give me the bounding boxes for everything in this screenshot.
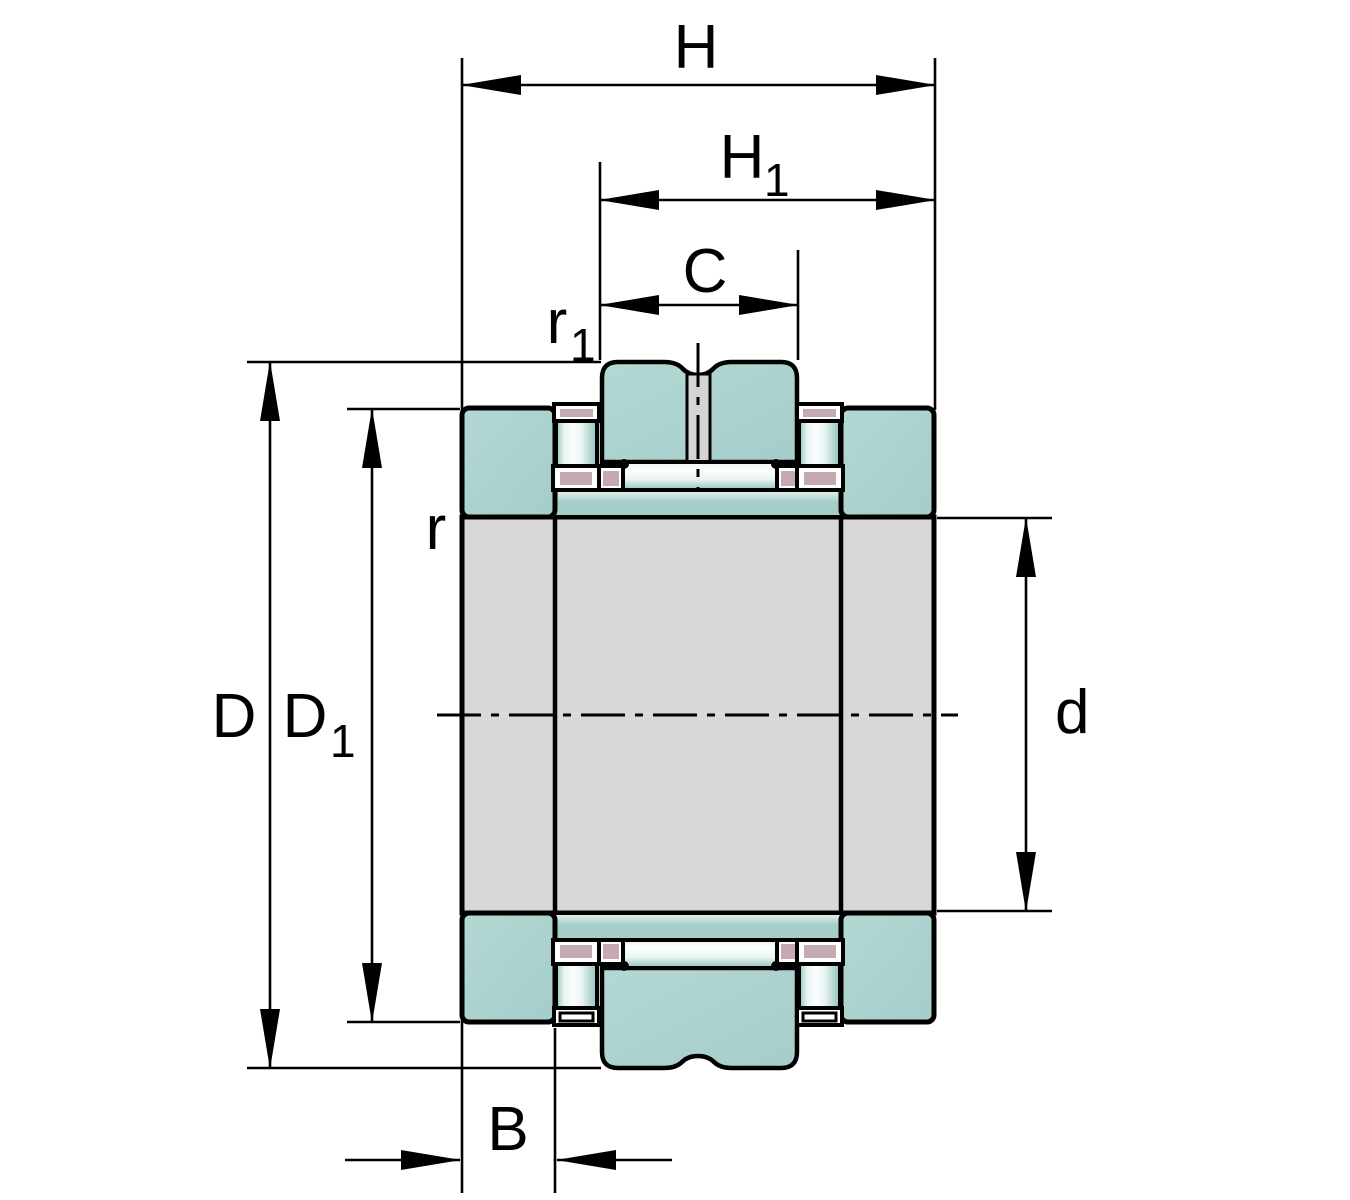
diagram-stage: H H 1 C r 1 r D D 1 d: [0, 0, 1350, 1200]
cage-segment-insert: [560, 472, 592, 485]
dimension-B: B: [345, 1095, 672, 1164]
radial-roller-bottom-left: [556, 962, 597, 1008]
radial-roller-top-left: [556, 421, 597, 467]
cage-bar-insert: [803, 409, 836, 417]
housing-block-bottom-right: [841, 913, 934, 1022]
bottom-sleeve-plug: [602, 968, 797, 1068]
housing-block-top-left: [462, 408, 555, 517]
h-dimension-label: H: [674, 13, 719, 82]
bearing-cross-section-diagram: H H 1 C r 1 r D D 1 d: [0, 0, 1350, 1200]
d-bore-dimension-label: d: [1055, 678, 1089, 747]
top-thrust-washer: [553, 490, 843, 517]
d1-dimension-subscript: 1: [330, 715, 356, 767]
h1-dimension-subscript: 1: [764, 154, 790, 206]
cage-segment-insert: [804, 945, 836, 958]
cage-bar-insert: [560, 1013, 593, 1021]
h1-dimension-label: H: [720, 123, 765, 192]
cage-segment-insert: [603, 944, 619, 959]
cage-bar-insert: [803, 1013, 836, 1021]
cage-segment-insert: [603, 471, 619, 486]
housing-block-top-right: [841, 408, 934, 517]
c-dimension-label: C: [683, 237, 728, 306]
cage-segment-insert: [804, 472, 836, 485]
cage-segment-insert: [781, 944, 797, 959]
dimension-H: H: [462, 13, 935, 85]
radial-roller-bottom-right: [799, 962, 840, 1008]
r-label: r: [426, 494, 447, 563]
d-cap-dimension-label: D: [212, 682, 257, 751]
dimension-H1: H 1: [600, 123, 935, 360]
r1-label: r: [547, 288, 568, 357]
housing-block-bottom-left: [462, 913, 555, 1022]
dimension-d: d: [937, 518, 1089, 911]
bottom-axial-roller: [622, 940, 778, 968]
top-axial-roller: [622, 462, 778, 490]
bottom-thrust-washer: [553, 913, 843, 940]
dimension-C: C: [600, 237, 798, 360]
cage-segment-insert: [560, 945, 592, 958]
cage-segment-insert: [781, 471, 797, 486]
d1-dimension-label: D: [283, 682, 328, 751]
b-dimension-label: B: [487, 1095, 528, 1164]
dimension-r: r: [426, 494, 447, 563]
radial-roller-top-right: [799, 421, 840, 467]
dimension-r1: r 1: [547, 288, 596, 371]
cage-bar-insert: [560, 409, 593, 417]
